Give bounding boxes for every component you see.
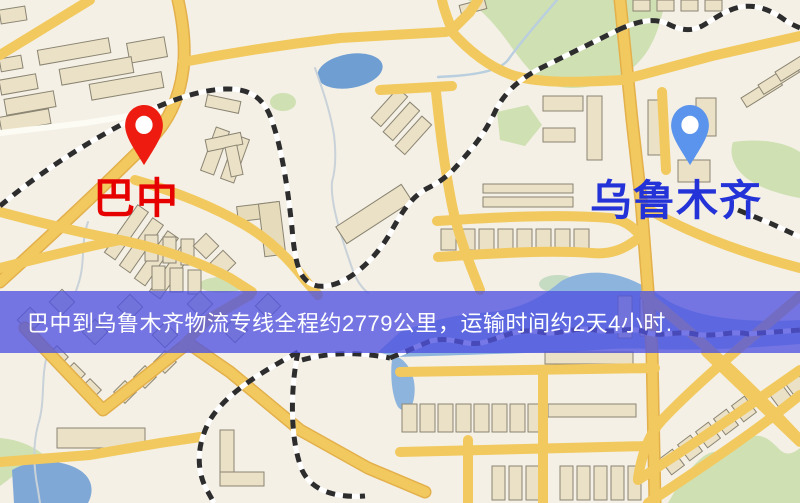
route-info-text: 巴中到乌鲁木齐物流专线全程约2779公里，运输时间约2天4小时. [27,306,673,338]
map-canvas [0,0,800,503]
origin-city-label: 巴中 [93,178,179,220]
map-screenshot: 巴中 乌鲁木齐 巴中到乌鲁木齐物流专线全程约2779公里，运输时间约2天4小时. [0,0,800,503]
route-info-banner: 巴中到乌鲁木齐物流专线全程约2779公里，运输时间约2天4小时. [0,291,800,353]
destination-city-label: 乌鲁木齐 [590,180,762,222]
